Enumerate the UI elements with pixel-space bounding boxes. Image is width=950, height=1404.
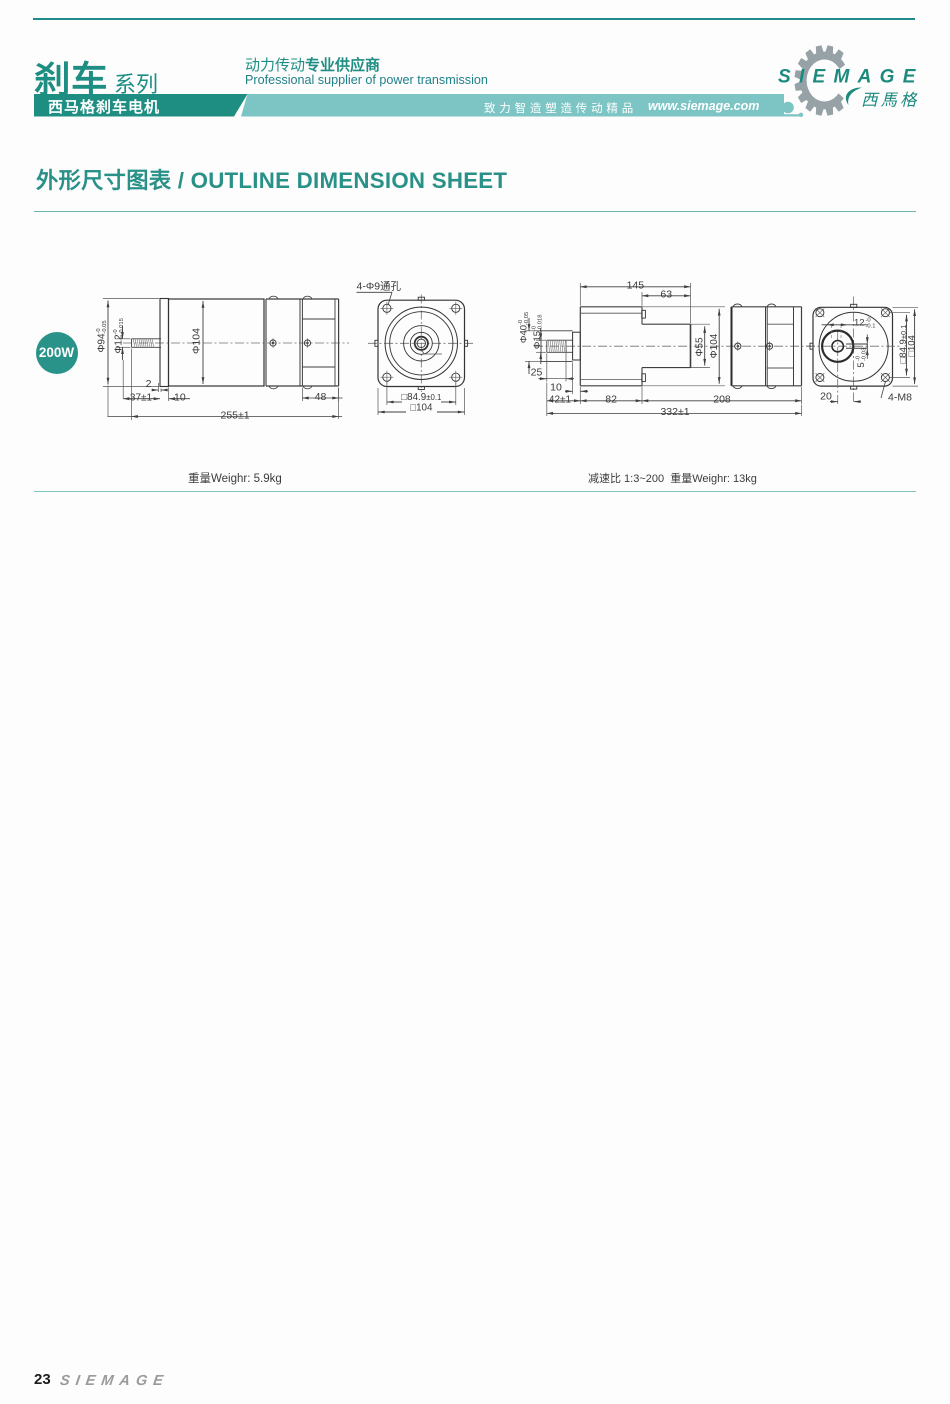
svg-text:西馬格: 西馬格 (861, 92, 920, 110)
svg-text:332±1: 332±1 (660, 406, 689, 418)
svg-text:37±1: 37±1 (130, 393, 153, 404)
svg-text:4-M8: 4-M8 (888, 392, 912, 404)
svg-text:Φ12: Φ12 (114, 334, 125, 354)
svg-text:Φ15: Φ15 (532, 331, 543, 349)
svg-text:82: 82 (605, 394, 617, 406)
svg-text:208: 208 (713, 394, 731, 406)
svg-text:Φ55: Φ55 (695, 337, 706, 357)
svg-text:145: 145 (627, 280, 645, 292)
svg-text:255±1: 255±1 (220, 409, 249, 421)
svg-text:4-Φ9通孔: 4-Φ9通孔 (357, 280, 402, 293)
svg-text:-0.05: -0.05 (102, 320, 108, 333)
svg-text:Φ104: Φ104 (191, 328, 203, 354)
svg-text:-0.015: -0.015 (119, 318, 125, 334)
svg-text:□104: □104 (906, 335, 917, 357)
svg-text:10: 10 (174, 392, 186, 404)
svg-text:Φ40: Φ40 (518, 325, 529, 343)
svg-text:12: 12 (854, 318, 865, 329)
svg-text:SIEMAGE: SIEMAGE (778, 67, 924, 88)
svg-text:-0.03: -0.03 (862, 348, 868, 361)
svg-text:-0.1: -0.1 (866, 323, 876, 329)
svg-text:48: 48 (315, 391, 327, 403)
svg-text:Φ104: Φ104 (709, 333, 720, 358)
svg-text:63: 63 (660, 289, 672, 301)
svg-text:2: 2 (146, 378, 152, 390)
svg-text:25: 25 (531, 367, 543, 379)
svg-text:20: 20 (820, 391, 832, 403)
svg-text:-0.05: -0.05 (524, 312, 530, 325)
svg-text:Φ94: Φ94 (97, 333, 108, 353)
svg-text:42±1: 42±1 (549, 395, 572, 406)
svg-text:-0.018: -0.018 (538, 315, 544, 331)
svg-text:10: 10 (550, 382, 562, 394)
svg-text:□84.9±0.1: □84.9±0.1 (401, 392, 441, 403)
svg-text:5: 5 (856, 362, 867, 367)
svg-text:□104: □104 (410, 402, 433, 413)
